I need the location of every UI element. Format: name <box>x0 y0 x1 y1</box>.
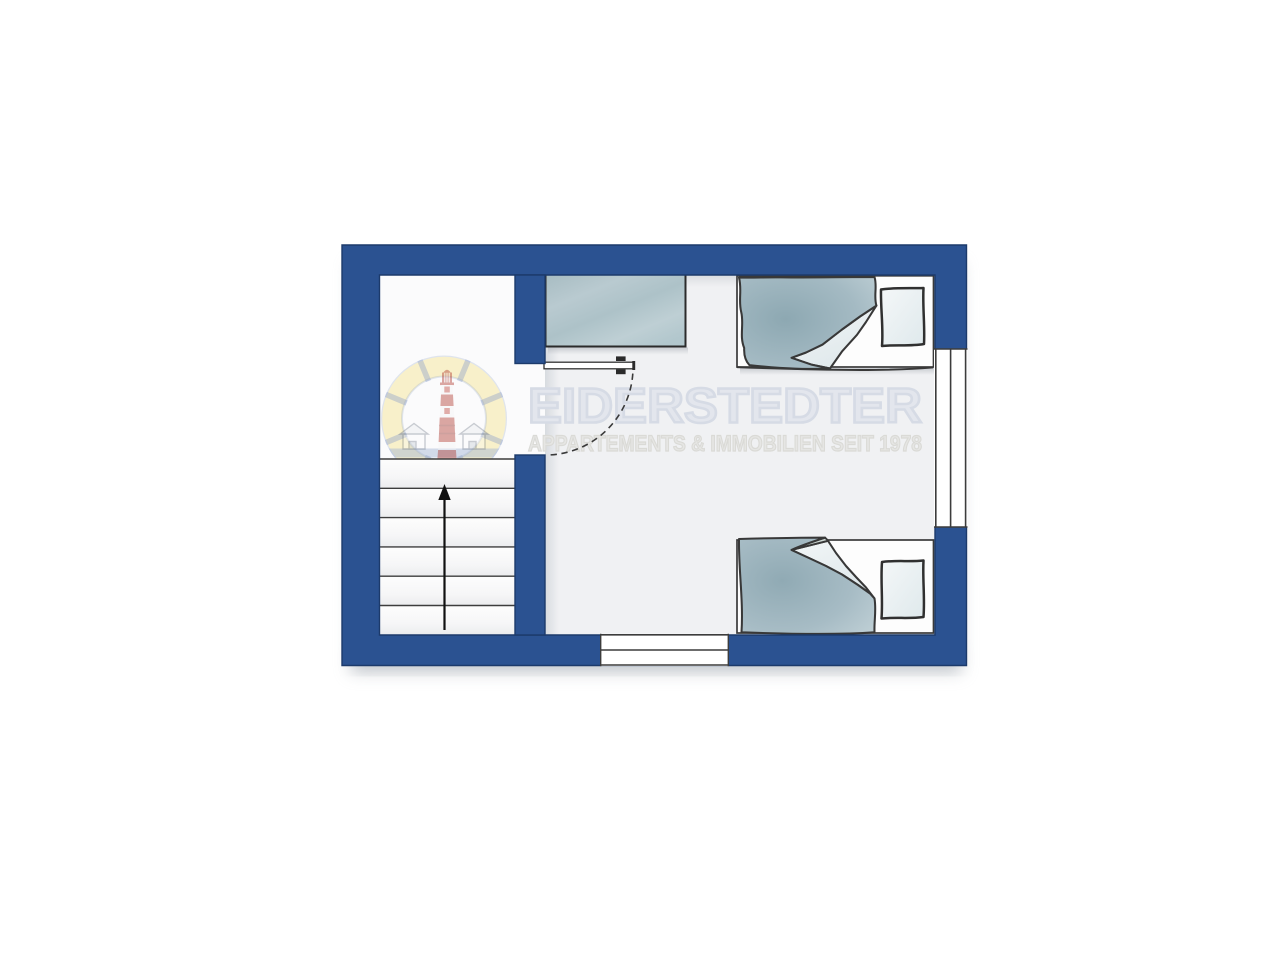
svg-text:EIDERSTEDTER: EIDERSTEDTER <box>528 380 922 434</box>
svg-text:APPARTEMENTS & IMMOBILIEN SEIT: APPARTEMENTS & IMMOBILIEN SEIT 1978 <box>528 431 922 456</box>
